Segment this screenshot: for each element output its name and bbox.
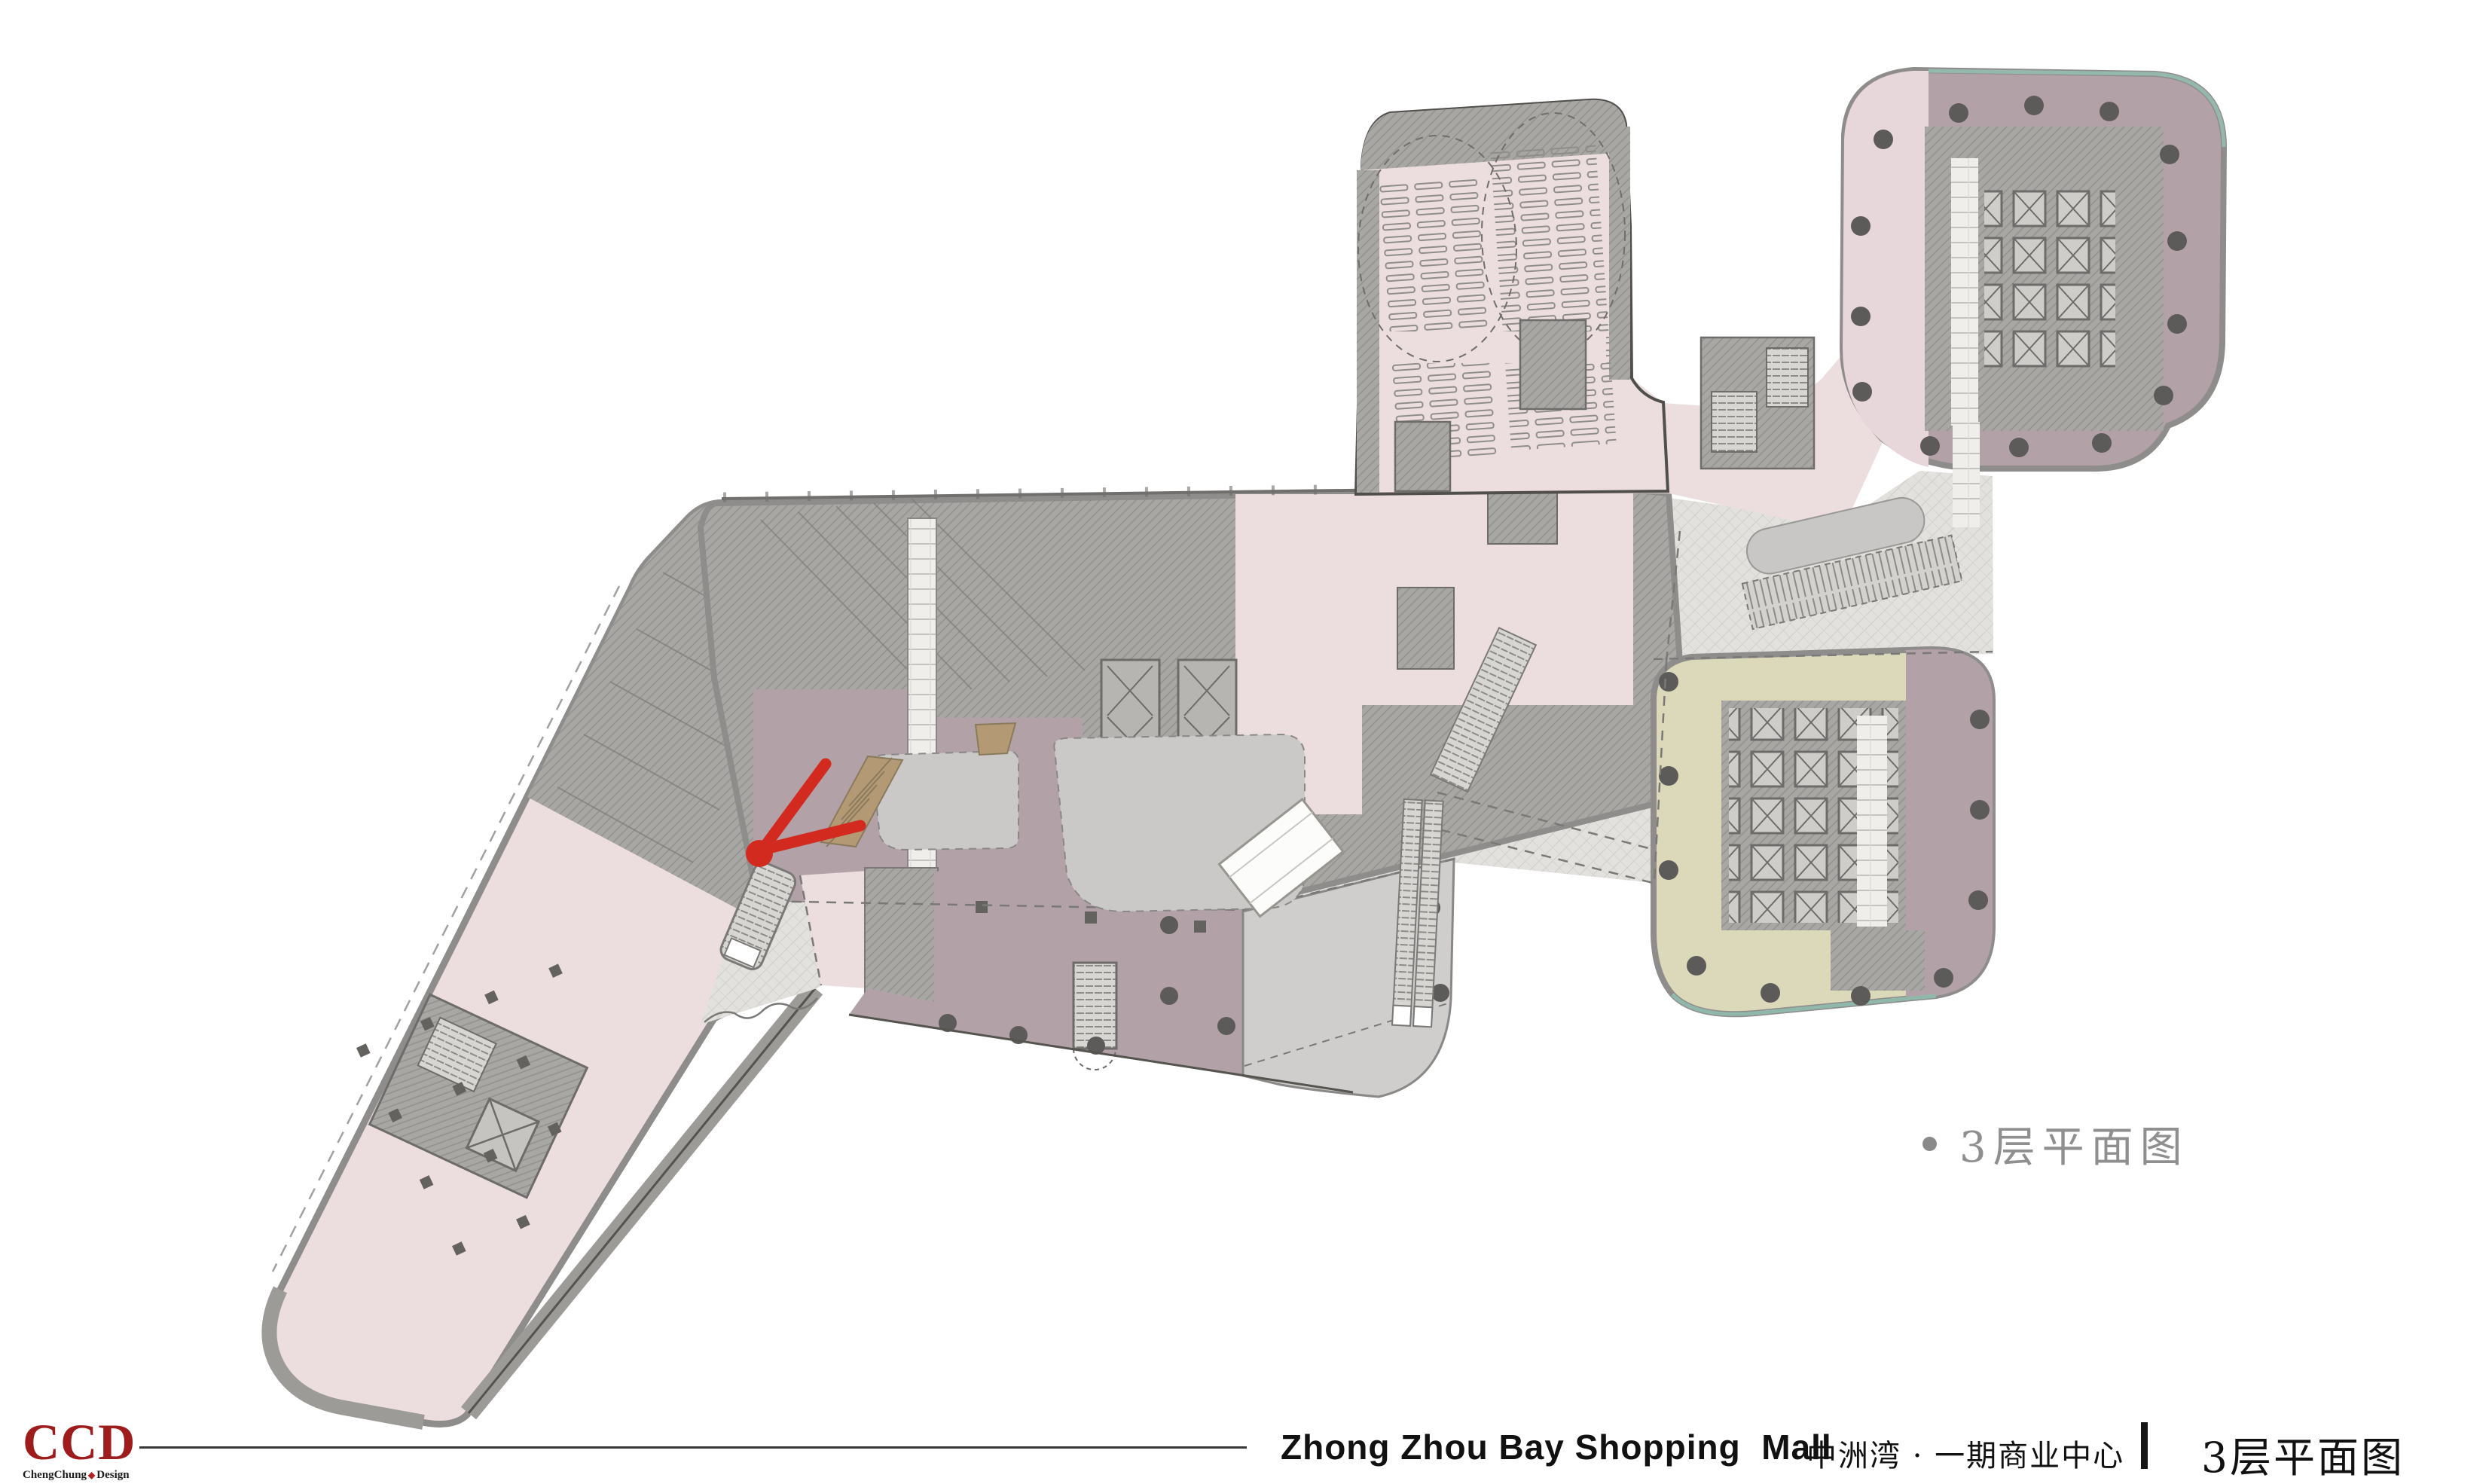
theater-seats bbox=[1376, 177, 1501, 463]
east-tower-block bbox=[1654, 649, 1993, 1014]
cinema-block bbox=[1356, 100, 1668, 494]
lobby-link-strip bbox=[1953, 422, 1980, 527]
project-name-en: Zhong Zhou Bay Shopping Mall bbox=[1281, 1427, 1832, 1467]
plan-caption-text: 3层平面图 bbox=[1959, 1113, 2189, 1174]
ccd-logo-acronym: CCD bbox=[23, 1416, 136, 1467]
footer-separator-bar bbox=[2141, 1422, 2148, 1469]
bullet-icon bbox=[1922, 1137, 1937, 1151]
slide: 3层平面图 Zhong Zhou Bay Shopping Mall 中洲湾 ·… bbox=[0, 0, 2492, 1483]
ccd-logo-subtitle: ChengChung◆Design bbox=[23, 1470, 136, 1481]
northeast-block bbox=[1843, 70, 2224, 527]
ccd-logo: CCD ChengChung◆Design bbox=[23, 1416, 136, 1481]
floor-plan-drawing bbox=[0, 0, 2492, 1483]
plan-caption: 3层平面图 bbox=[1922, 1113, 2189, 1174]
footer-divider-line bbox=[139, 1446, 1247, 1449]
logo-diamond-icon: ◆ bbox=[87, 1470, 96, 1480]
project-name-cn: 中洲湾 · 一期商业中心 bbox=[1806, 1431, 2124, 1475]
page-title: 3层平面图 bbox=[2201, 1424, 2405, 1484]
